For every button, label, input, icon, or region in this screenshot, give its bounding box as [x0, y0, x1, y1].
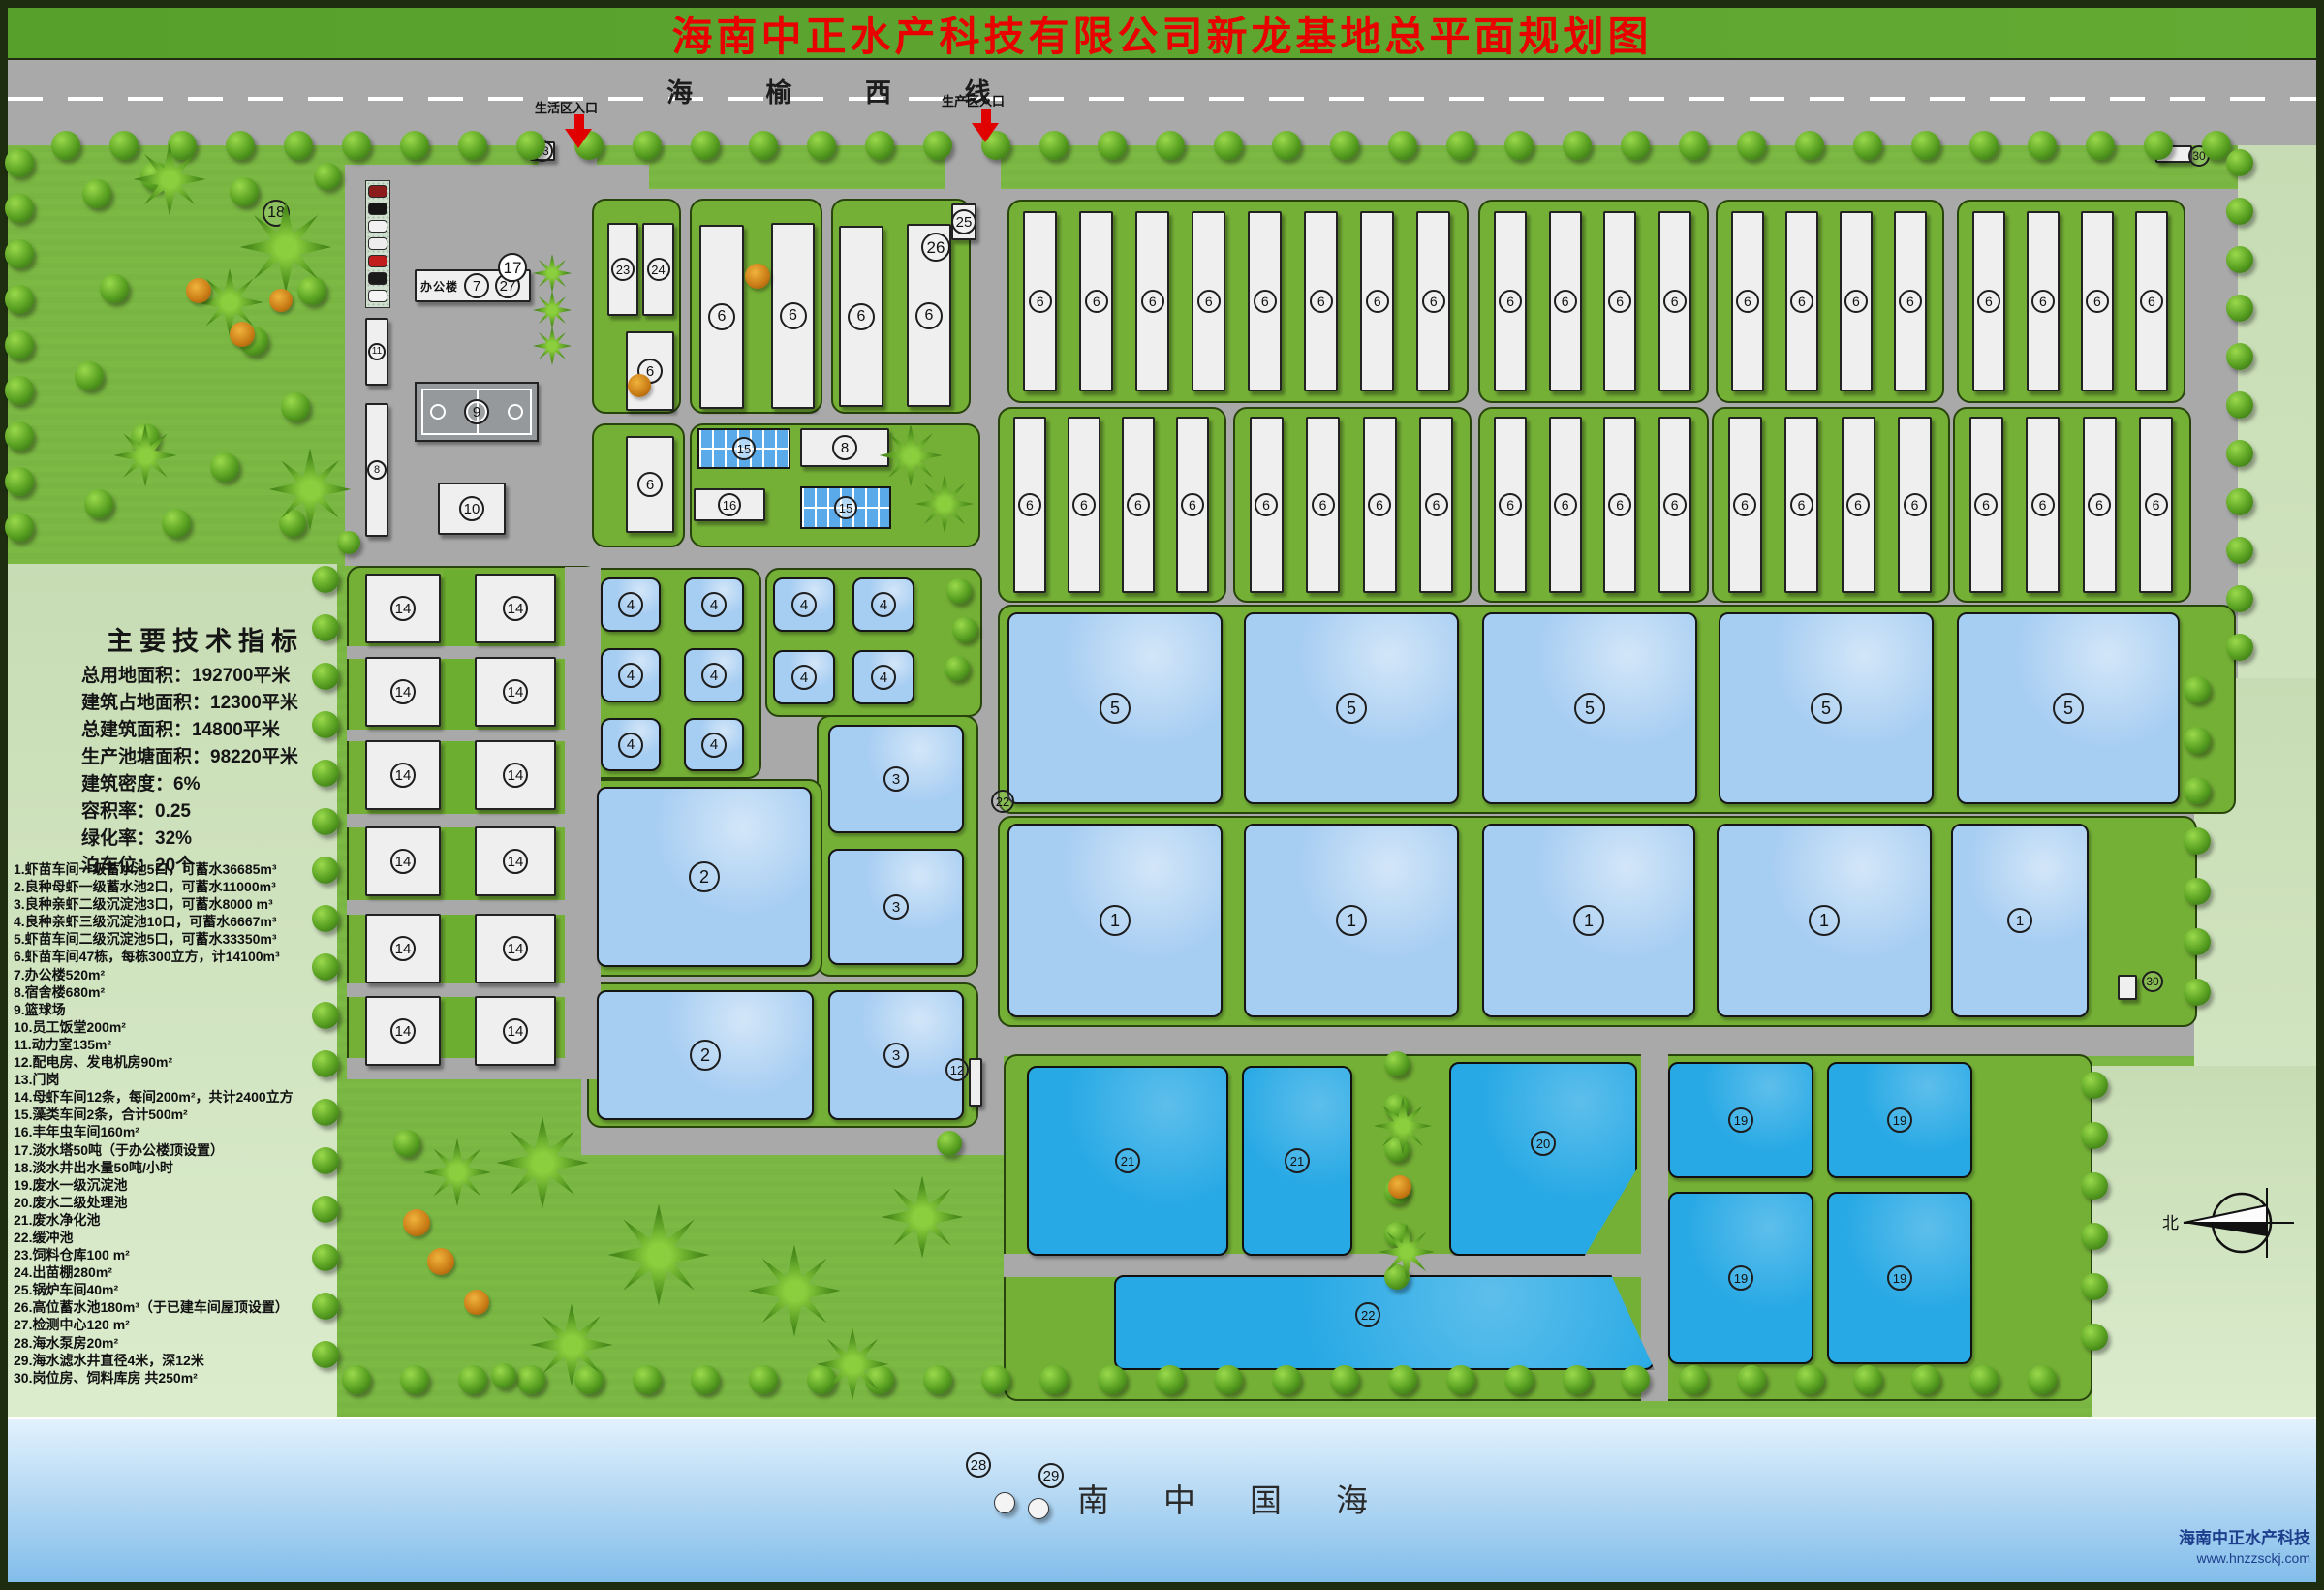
note-line: 25.锅炉车间40m² — [14, 1281, 294, 1298]
tree-icon — [1214, 1365, 1243, 1394]
circled-label-6: 6 — [1255, 493, 1278, 516]
circled-label-6: 6 — [1422, 290, 1445, 313]
palm-tree-icon — [240, 202, 332, 294]
note-line: 29.海水滤水井直径4米，深12米 — [14, 1352, 294, 1369]
circled-label-6: 6 — [1312, 493, 1335, 516]
tree-icon — [691, 1365, 720, 1394]
tree-icon — [75, 361, 104, 390]
circled-label-6: 6 — [2088, 493, 2111, 516]
production-entrance-label: 生产区入口 — [942, 91, 1005, 109]
palm-tree-icon — [533, 327, 572, 365]
tree-icon — [1272, 1365, 1301, 1394]
circled-label-6: 6 — [1608, 493, 1631, 516]
tree-icon — [1504, 131, 1534, 160]
legend-line: 总用地面积：192700平米 — [81, 663, 298, 690]
circled-label-4: 4 — [618, 592, 643, 617]
orange-shrub-icon — [1388, 1175, 1411, 1199]
circled-label-6: 6 — [1366, 290, 1389, 313]
circled-label-6: 6 — [1977, 290, 2000, 313]
circled-label-16: 16 — [718, 493, 741, 516]
pond-22 — [1114, 1275, 1655, 1370]
circled-label-6: 6 — [1974, 493, 1998, 516]
legend-line: 容积率：0.25 — [81, 798, 298, 826]
circled-label-6: 6 — [1072, 493, 1096, 516]
tree-icon — [2028, 131, 2057, 160]
tree-icon — [458, 1365, 487, 1394]
circled-label-14: 14 — [503, 596, 528, 621]
palm-tree-icon — [608, 1204, 710, 1306]
tree-icon — [937, 1131, 962, 1156]
tree-icon — [51, 131, 80, 160]
note-line: 2.良种母虾一级蓄水池2口，可蓄水11000m³ — [14, 878, 294, 895]
circled-label-6: 6 — [1499, 290, 1522, 313]
circled-label-4: 4 — [871, 665, 896, 690]
circled-label-4: 4 — [871, 592, 896, 617]
tree-icon — [491, 1363, 516, 1388]
circled-label-6: 6 — [1899, 290, 1922, 313]
title-bar: 海南中正水产科技有限公司新龙基地总平面规划图 — [8, 8, 2316, 60]
circled-label-6: 6 — [780, 302, 807, 329]
orange-shrub-icon — [745, 264, 770, 289]
tree-icon — [691, 131, 720, 160]
tree-icon — [749, 131, 778, 160]
tree-icon — [312, 663, 339, 690]
tree-icon — [2081, 1223, 2108, 1250]
circled-label-6: 6 — [2145, 493, 2168, 516]
tree-icon — [342, 131, 371, 160]
tree-icon — [633, 1365, 662, 1394]
living-entrance-label: 生活区入口 — [535, 98, 598, 116]
circled-label-6: 6 — [1844, 290, 1868, 313]
circled-label-6: 6 — [848, 303, 875, 330]
legend-line: 绿化率：32% — [81, 826, 298, 853]
circled-label-1: 1 — [1100, 905, 1131, 936]
tree-icon — [1795, 1365, 1824, 1394]
palm-tree-icon — [880, 424, 943, 487]
circled-label-19: 19 — [1887, 1107, 1912, 1133]
tree-icon — [1563, 131, 1592, 160]
note-line: 30.岗位房、饲料库房 共250m² — [14, 1369, 294, 1387]
circled-label-6: 6 — [1846, 493, 1870, 516]
compass-north-icon: 北 — [2162, 1184, 2298, 1262]
tree-icon — [807, 131, 836, 160]
tree-icon — [574, 1365, 604, 1394]
legend-line: 生产池塘面积：98220平米 — [81, 744, 298, 771]
circled-label-4: 4 — [791, 665, 817, 690]
tree-icon — [458, 131, 487, 160]
circled-label-6: 6 — [1181, 493, 1204, 516]
tree-icon — [2226, 537, 2253, 564]
tree-icon — [946, 578, 972, 604]
circled-label-5: 5 — [2053, 693, 2084, 724]
map-layer: 4444444444323235555511111212120191919192… — [0, 0, 2324, 1590]
parking-lot — [365, 180, 390, 308]
office-building-label: 办公楼 — [420, 278, 458, 295]
circled-label-15: 15 — [834, 496, 857, 519]
parked-car — [368, 272, 387, 285]
tree-icon — [2081, 1324, 2108, 1351]
tree-icon — [2184, 979, 2211, 1006]
palm-tree-icon — [1374, 1097, 1432, 1155]
parked-car — [368, 220, 387, 233]
tree-icon — [1384, 1051, 1410, 1076]
building — [2118, 975, 2137, 1000]
circled-label-30: 30 — [2142, 971, 2163, 992]
tree-icon — [312, 905, 339, 932]
tree-icon — [312, 1341, 339, 1368]
circled-label-3: 3 — [883, 766, 909, 792]
tree-icon — [1621, 1365, 1650, 1394]
tree-icon — [312, 953, 339, 981]
tree-icon — [5, 421, 34, 451]
note-line: 8.宿舍楼680m² — [14, 983, 294, 1001]
brand-block: 海南中正水产科技 www.hnzzsckj.com — [2112, 1528, 2310, 1567]
circled-label-1: 1 — [1573, 905, 1604, 936]
note-line: 6.虾苗车间47栋，每栋300立方，计14100m³ — [14, 948, 294, 965]
circled-label-6: 6 — [2031, 290, 2055, 313]
tree-icon — [2184, 777, 2211, 804]
circled-label-14: 14 — [390, 936, 416, 961]
tree-icon — [1853, 131, 1882, 160]
tree-icon — [312, 760, 339, 787]
circled-label-4: 4 — [701, 592, 727, 617]
circled-label-25: 25 — [951, 209, 976, 234]
palm-tree-icon — [269, 449, 352, 531]
circled-label-6: 6 — [1904, 493, 1927, 516]
circled-label-6: 6 — [1141, 290, 1164, 313]
parked-car — [368, 185, 387, 198]
circled-label-6: 6 — [708, 303, 735, 330]
palm-tree-icon — [915, 475, 974, 533]
well-circle — [1028, 1498, 1049, 1519]
circled-label-8: 8 — [832, 435, 857, 460]
tree-icon — [312, 566, 339, 593]
circled-label-6: 6 — [1554, 493, 1577, 516]
orange-shrub-icon — [230, 322, 255, 347]
tree-icon — [312, 1099, 339, 1126]
palm-tree-icon — [497, 1117, 589, 1209]
brand-name: 海南中正水产科技 — [2112, 1528, 2310, 1549]
palm-tree-icon — [533, 291, 572, 329]
tree-icon — [2184, 928, 2211, 955]
circled-label-19: 19 — [1728, 1265, 1753, 1291]
circled-label-29: 29 — [1038, 1463, 1064, 1488]
circled-label-4: 4 — [618, 733, 643, 758]
note-line: 19.废水一级沉淀池 — [14, 1176, 294, 1194]
tree-icon — [516, 1365, 545, 1394]
note-line: 16.丰年虫车间160m² — [14, 1123, 294, 1140]
circled-label-6: 6 — [1018, 493, 1041, 516]
circled-label-5: 5 — [1336, 693, 1367, 724]
tree-icon — [312, 1050, 339, 1077]
note-line: 27.检测中心120 m² — [14, 1316, 294, 1333]
orange-shrub-icon — [628, 374, 651, 397]
tree-icon — [2081, 1172, 2108, 1200]
circled-label-4: 4 — [701, 663, 727, 688]
road-strip — [1641, 1054, 1668, 1401]
orange-shrub-icon — [464, 1290, 489, 1315]
circled-label-3: 3 — [883, 894, 909, 920]
tree-icon — [5, 194, 34, 223]
circled-label-14: 14 — [503, 936, 528, 961]
circled-label-6: 6 — [1736, 290, 1759, 313]
tree-icon — [1911, 131, 1940, 160]
tree-icon — [314, 163, 341, 190]
parked-car — [368, 237, 387, 250]
circled-label-1: 1 — [2007, 908, 2032, 933]
tree-icon — [2144, 131, 2173, 160]
tree-icon — [337, 531, 360, 554]
note-line: 26.高位蓄水池180m³（于已建车间屋顶设置） — [14, 1298, 294, 1316]
tree-icon — [2226, 246, 2253, 273]
circled-label-14: 14 — [503, 679, 528, 704]
tree-icon — [516, 131, 545, 160]
tree-icon — [1621, 131, 1650, 160]
tree-icon — [342, 1365, 371, 1394]
tree-icon — [1446, 131, 1475, 160]
circled-label-3: 3 — [883, 1043, 909, 1068]
tree-icon — [2081, 1273, 2108, 1300]
tree-icon — [2226, 198, 2253, 225]
sea-name-label: 南中国海 — [1077, 1475, 1368, 1521]
circled-label-4: 4 — [618, 663, 643, 688]
circled-label-23: 23 — [611, 258, 635, 281]
tree-icon — [2202, 131, 2231, 160]
facility-notes-list: 1.虾苗车间一级蓄水池5口，可蓄水36685m³2.良种母虾一级蓄水池2口，可蓄… — [14, 860, 294, 1387]
circled-label-6: 6 — [1029, 290, 1052, 313]
tree-icon — [312, 1002, 339, 1029]
road-strip — [347, 900, 599, 915]
tree-icon — [2028, 1365, 2057, 1394]
circled-label-6: 6 — [2086, 290, 2109, 313]
circled-label-14: 14 — [390, 679, 416, 704]
tree-icon — [2226, 295, 2253, 322]
circled-label-2: 2 — [690, 1040, 721, 1071]
circled-label-22: 22 — [991, 790, 1014, 813]
note-line: 7.办公楼520m² — [14, 966, 294, 983]
tree-icon — [2184, 827, 2211, 855]
orange-shrub-icon — [427, 1248, 454, 1275]
circled-label-6: 6 — [1663, 493, 1687, 516]
circled-label-5: 5 — [1574, 693, 1605, 724]
palm-tree-icon — [114, 424, 177, 487]
palm-tree-icon — [817, 1328, 889, 1401]
tree-icon — [284, 131, 313, 160]
tree-icon — [312, 711, 339, 738]
tree-icon — [312, 1244, 339, 1271]
tree-icon — [312, 1147, 339, 1174]
tree-icon — [2184, 727, 2211, 754]
note-line: 28.海水泵房20m² — [14, 1334, 294, 1352]
circled-label-20: 20 — [1531, 1131, 1556, 1156]
circled-label-6: 6 — [1085, 290, 1108, 313]
circled-label-6: 6 — [1608, 290, 1631, 313]
tree-icon — [5, 330, 34, 359]
tree-icon — [1679, 1365, 1708, 1394]
tree-icon — [1795, 131, 1824, 160]
tree-icon — [393, 1130, 420, 1157]
note-line: 11.动力室135m² — [14, 1036, 294, 1053]
tree-icon — [2081, 1122, 2108, 1149]
tree-icon — [1098, 131, 1127, 160]
circled-label-9: 9 — [464, 399, 489, 424]
tree-icon — [5, 148, 34, 177]
tree-icon — [312, 1293, 339, 1320]
circled-label-14: 14 — [503, 849, 528, 874]
note-line: 12.配电房、发电机房90m² — [14, 1053, 294, 1071]
tree-icon — [1679, 131, 1708, 160]
circled-label-6: 6 — [2140, 290, 2163, 313]
building — [969, 1058, 982, 1107]
sea-name-char: 国 — [1250, 1475, 1282, 1521]
circled-label-6: 6 — [915, 302, 943, 329]
tree-icon — [210, 452, 239, 482]
tree-icon — [2184, 878, 2211, 905]
note-line: 18.淡水井出水量50吨/小时 — [14, 1159, 294, 1176]
tree-icon — [923, 131, 952, 160]
note-line: 22.缓冲池 — [14, 1229, 294, 1246]
legend-indicator-list: 总用地面积：192700平米建筑占地面积：12300平米总建筑面积：14800平… — [81, 663, 298, 880]
note-line: 9.篮球场 — [14, 1001, 294, 1018]
circled-label-6: 6 — [1197, 290, 1221, 313]
sea-name-char: 海 — [1336, 1475, 1368, 1521]
note-line: 4.良种亲虾三级沉淀池10口，可蓄水6667m³ — [14, 913, 294, 930]
circled-label-11: 11 — [368, 343, 386, 360]
tree-icon — [1330, 1365, 1359, 1394]
tree-icon — [2226, 634, 2253, 661]
tree-icon — [5, 513, 34, 542]
circled-label-24: 24 — [647, 258, 670, 281]
tree-icon — [109, 131, 139, 160]
note-line: 14.母虾车间12条，每间200m²，共计2400立方 — [14, 1088, 294, 1106]
note-line: 21.废水净化池 — [14, 1211, 294, 1229]
tree-icon — [2226, 585, 2253, 612]
tree-icon — [2226, 391, 2253, 419]
site-plan-canvas: 4444444444323235555511111212120191919192… — [0, 0, 2324, 1590]
palm-tree-icon — [749, 1245, 841, 1337]
green-block — [1007, 200, 1469, 403]
road-strip — [1004, 1254, 1662, 1277]
tree-icon — [84, 489, 113, 518]
brand-url: www.hnzzsckj.com — [2112, 1549, 2310, 1567]
circled-label-21: 21 — [1285, 1148, 1310, 1173]
circled-label-4: 4 — [701, 733, 727, 758]
road-center-line — [8, 97, 2316, 101]
tree-icon — [5, 467, 34, 496]
circled-label-6: 6 — [637, 472, 663, 497]
circled-label-6: 6 — [1663, 290, 1687, 313]
note-line: 1.虾苗车间一级蓄水池5口，可蓄水36685m³ — [14, 860, 294, 878]
circled-label-26: 26 — [921, 233, 950, 262]
note-line: 24.出苗棚280m² — [14, 1263, 294, 1281]
circled-label-1: 1 — [1336, 905, 1367, 936]
circled-label-14: 14 — [390, 596, 416, 621]
tree-icon — [1853, 1365, 1882, 1394]
tree-icon — [1969, 131, 1999, 160]
road-strip — [347, 814, 599, 827]
circled-label-6: 6 — [1425, 493, 1448, 516]
tree-icon — [5, 285, 34, 314]
note-line: 5.虾苗车间二级沉淀池5口，可蓄水33350m³ — [14, 930, 294, 948]
orange-shrub-icon — [186, 278, 211, 303]
page-title: 海南中正水产科技有限公司新龙基地总平面规划图 — [671, 4, 1652, 63]
circled-label-15: 15 — [732, 437, 756, 460]
tree-icon — [981, 1365, 1010, 1394]
circled-label-6: 6 — [1368, 493, 1391, 516]
tree-icon — [945, 656, 970, 681]
circled-label-6: 6 — [1554, 290, 1577, 313]
orange-shrub-icon — [403, 1209, 430, 1236]
note-line: 20.废水二级处理池 — [14, 1194, 294, 1211]
tree-icon — [1911, 1365, 1940, 1394]
circled-label-2: 2 — [689, 861, 720, 892]
circled-label-19: 19 — [1887, 1265, 1912, 1291]
tree-icon — [2226, 488, 2253, 515]
note-line: 23.饲料仓库100 m² — [14, 1246, 294, 1263]
circled-label-6: 6 — [2031, 493, 2055, 516]
circled-label-6: 6 — [1310, 290, 1333, 313]
palm-tree-icon — [533, 254, 572, 293]
svg-text:北: 北 — [2162, 1214, 2179, 1232]
tree-icon — [1388, 131, 1417, 160]
road-strip — [347, 983, 599, 997]
tree-icon — [1156, 1365, 1185, 1394]
well-circle — [994, 1492, 1015, 1513]
tree-icon — [312, 1196, 339, 1223]
tree-icon — [2226, 440, 2253, 467]
tree-icon — [5, 239, 34, 268]
circled-label-14: 14 — [503, 763, 528, 788]
palm-tree-icon — [882, 1176, 964, 1259]
tree-icon — [226, 131, 255, 160]
tree-icon — [1330, 131, 1359, 160]
tree-icon — [297, 276, 326, 305]
tree-icon — [312, 808, 339, 835]
tree-icon — [1737, 131, 1766, 160]
palm-tree-icon — [531, 1304, 613, 1387]
palm-tree-icon — [423, 1138, 491, 1206]
tree-icon — [5, 376, 34, 405]
tree-icon — [279, 510, 306, 537]
tree-icon — [100, 274, 129, 303]
tree-icon — [1563, 1365, 1592, 1394]
circled-label-5: 5 — [1100, 693, 1131, 724]
circled-label-1: 1 — [1809, 905, 1840, 936]
circled-label-14: 14 — [390, 763, 416, 788]
circled-label-14: 14 — [390, 849, 416, 874]
tree-icon — [2081, 1072, 2108, 1099]
legend-title: 主要技术指标 — [107, 620, 304, 658]
circled-label-19: 19 — [1728, 1107, 1753, 1133]
note-line: 15.藻类车间2条，合计500m² — [14, 1106, 294, 1123]
road-strip — [565, 567, 601, 1072]
tree-icon — [400, 1365, 429, 1394]
tree-icon — [2184, 676, 2211, 703]
circled-label-6: 6 — [1790, 290, 1813, 313]
circled-label-4: 4 — [791, 592, 817, 617]
entrance-arrow-icon — [972, 109, 1001, 143]
note-line: 13.门岗 — [14, 1071, 294, 1088]
palm-tree-icon — [196, 268, 263, 336]
tree-icon — [1039, 131, 1069, 160]
circled-label-10: 10 — [459, 496, 484, 521]
circled-label-6: 6 — [1254, 290, 1277, 313]
circled-label-12: 12 — [945, 1058, 969, 1081]
tree-icon — [865, 131, 894, 160]
tree-icon — [1214, 131, 1243, 160]
note-line: 17.淡水塔50吨（于办公楼顶设置） — [14, 1141, 294, 1159]
circled-label-6: 6 — [1790, 493, 1813, 516]
